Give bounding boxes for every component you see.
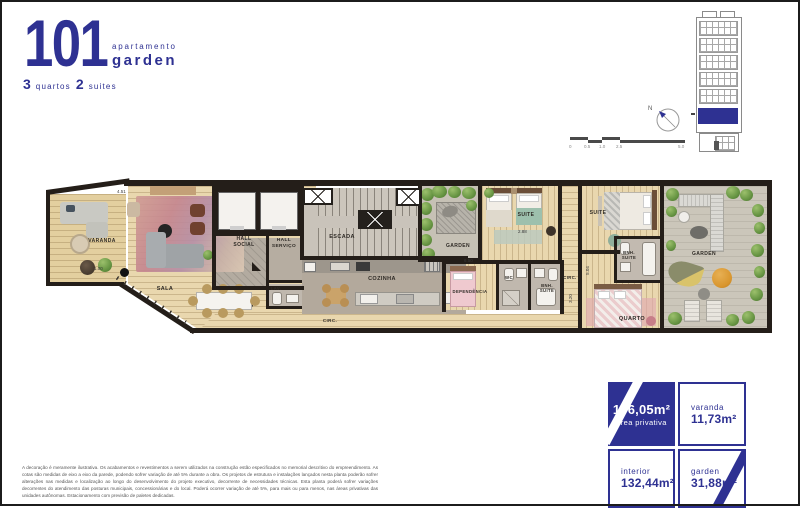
orange-pouf [712, 268, 732, 288]
elevator-door [230, 226, 244, 230]
window-band [699, 72, 738, 87]
lounge-chair [706, 300, 722, 322]
legal-disclaimer: A decoração é meramente ilustrativa. Os … [22, 464, 378, 500]
pillow [453, 273, 473, 280]
elevator-cab [218, 192, 256, 230]
shaft-x-box [396, 188, 421, 206]
island-sink [360, 294, 378, 304]
window-band [699, 21, 738, 36]
area-varanda-value: 11,73m² [691, 412, 744, 426]
window-band [699, 38, 738, 53]
column [120, 268, 129, 277]
area-garden-value: 31,88m² [691, 476, 744, 490]
kitchen-chair [322, 284, 331, 293]
area-box-privativa: 176,05m² área privativa [608, 382, 675, 446]
dimension-label: 3.20 [568, 294, 573, 303]
scale-tick: 0.5 [584, 144, 590, 149]
bathtub [642, 242, 656, 276]
room-label-bnh-suite2: BNH. SUITE [617, 250, 641, 260]
toilet [548, 268, 558, 281]
room-label-cozinha: COZINHA [362, 276, 402, 283]
pillow [643, 212, 651, 225]
room-label-hall-servico: HALL SERVIÇO [268, 238, 300, 250]
scale-tick: 5.0 [678, 144, 684, 149]
shower [502, 290, 520, 306]
suites-count: 2 [76, 76, 84, 92]
area-interior-value: 132,44m² [621, 476, 673, 490]
highlighted-floor-band [698, 108, 738, 124]
room-label-hall-social: HALL SOCIAL [226, 236, 262, 248]
area-garden-label: garden [691, 467, 744, 476]
sink [286, 294, 299, 303]
shaft-x-box [303, 188, 333, 205]
level-tick [691, 113, 695, 115]
kitchen-sink [330, 262, 350, 271]
dining-chair [250, 296, 260, 306]
kitchen-chair [322, 298, 331, 307]
dimension-label: 6.50 [464, 258, 473, 263]
sink [516, 268, 527, 278]
varanda-chaise-ext [86, 222, 108, 238]
window-band [699, 89, 738, 104]
stair-flight-lower [318, 228, 418, 256]
area-privativa-label: área privativa [616, 418, 667, 427]
gray-pouf [698, 288, 710, 300]
dimension-label: 4.51 [117, 189, 126, 194]
suites-label: suites [89, 82, 117, 91]
room-label-garden-right: GARDEN [686, 251, 722, 257]
scale-tick: 1.0 [599, 144, 605, 149]
room-label-suite1: SUITE [512, 212, 540, 218]
pillow [643, 195, 651, 208]
blanket [486, 210, 512, 227]
dining-chair [234, 308, 244, 318]
area-box-interior: interior 132,44m² [608, 449, 675, 508]
door-swing [252, 262, 261, 271]
dining-chair [202, 308, 212, 318]
room-label-escada: ESCADA [324, 234, 360, 241]
sofa-chaise [146, 232, 166, 268]
room-label-varanda: VARANDA [82, 238, 122, 244]
elevator-cab [260, 192, 298, 230]
room-label-garden-mid: GARDEN [440, 243, 476, 249]
dimension-label: 5.04 [585, 266, 590, 275]
room-label-circ2: CIRC. [561, 275, 579, 280]
boulder-pouf [690, 226, 708, 239]
oven [424, 261, 440, 272]
dimension-label: 2.88 [518, 229, 527, 234]
shaft-x-box [358, 210, 392, 229]
unit-number: 101 [24, 10, 107, 76]
floor-plan-page: 101 apartamento garden 3 quartos 2 suite… [0, 0, 800, 514]
kitchen-chair [340, 298, 349, 307]
sink [534, 268, 545, 278]
pouf [546, 226, 556, 236]
sideboard [150, 186, 196, 195]
pouf [80, 260, 95, 275]
sink [620, 262, 631, 272]
area-box-garden: garden 31,88m² [678, 449, 746, 508]
room-label-sala: SALA [150, 286, 180, 293]
bedrooms-count: 3 [23, 76, 31, 92]
garden-sofa [710, 194, 724, 252]
scale-tick: 0 [569, 144, 572, 149]
cooktop [356, 262, 370, 271]
unit-type-garden: garden [112, 52, 177, 69]
pillow [598, 291, 610, 299]
area-privativa-value: 176,05m² [613, 402, 670, 417]
room-label-lav: LAV. [268, 286, 284, 291]
unit-counts: 3 quartos 2 suites [23, 76, 117, 92]
lounge-chair [684, 300, 700, 322]
bedrooms-label: quartos [36, 82, 71, 91]
leather-armchair [190, 222, 205, 235]
entry-door [714, 141, 719, 150]
dining-chair [202, 284, 212, 294]
room-label-suite2: SUITE [584, 210, 612, 216]
room-label-bnh-suite1: BNH. SUITE [534, 283, 560, 293]
dining-chair [218, 308, 228, 318]
nightstand [511, 188, 517, 194]
room-label-wc: WC [502, 275, 516, 280]
area-varanda-label: varanda [691, 403, 744, 412]
leather-armchair [190, 204, 205, 217]
round-table [678, 211, 690, 223]
fridge [304, 262, 316, 272]
kitchen-chair [340, 284, 349, 293]
elevator-door [272, 226, 286, 230]
dimension-label: 1.00 [94, 266, 103, 271]
area-box-varanda: varanda 11,73m² [678, 382, 746, 446]
circ-floor [200, 314, 580, 329]
pillow [519, 195, 539, 202]
dining-chair [188, 296, 198, 306]
room-label-dependencia: DEPENDÊNCIA [444, 289, 496, 294]
toilet [272, 292, 282, 305]
area-interior-label: interior [621, 467, 673, 476]
pillow [614, 291, 626, 299]
round-table [70, 234, 90, 254]
compass-icon [652, 104, 682, 134]
window-band [699, 55, 738, 70]
cushion [66, 205, 75, 212]
scale-tick: 2.5 [616, 144, 622, 149]
armchair [127, 202, 140, 217]
room-label-quarto: QUARTO [614, 316, 650, 323]
island-cooktop [396, 294, 414, 304]
unit-type-label: apartamento [112, 42, 177, 51]
pouf [58, 258, 73, 273]
headboard [652, 190, 657, 230]
room-label-circ: CIRC. [318, 318, 342, 323]
